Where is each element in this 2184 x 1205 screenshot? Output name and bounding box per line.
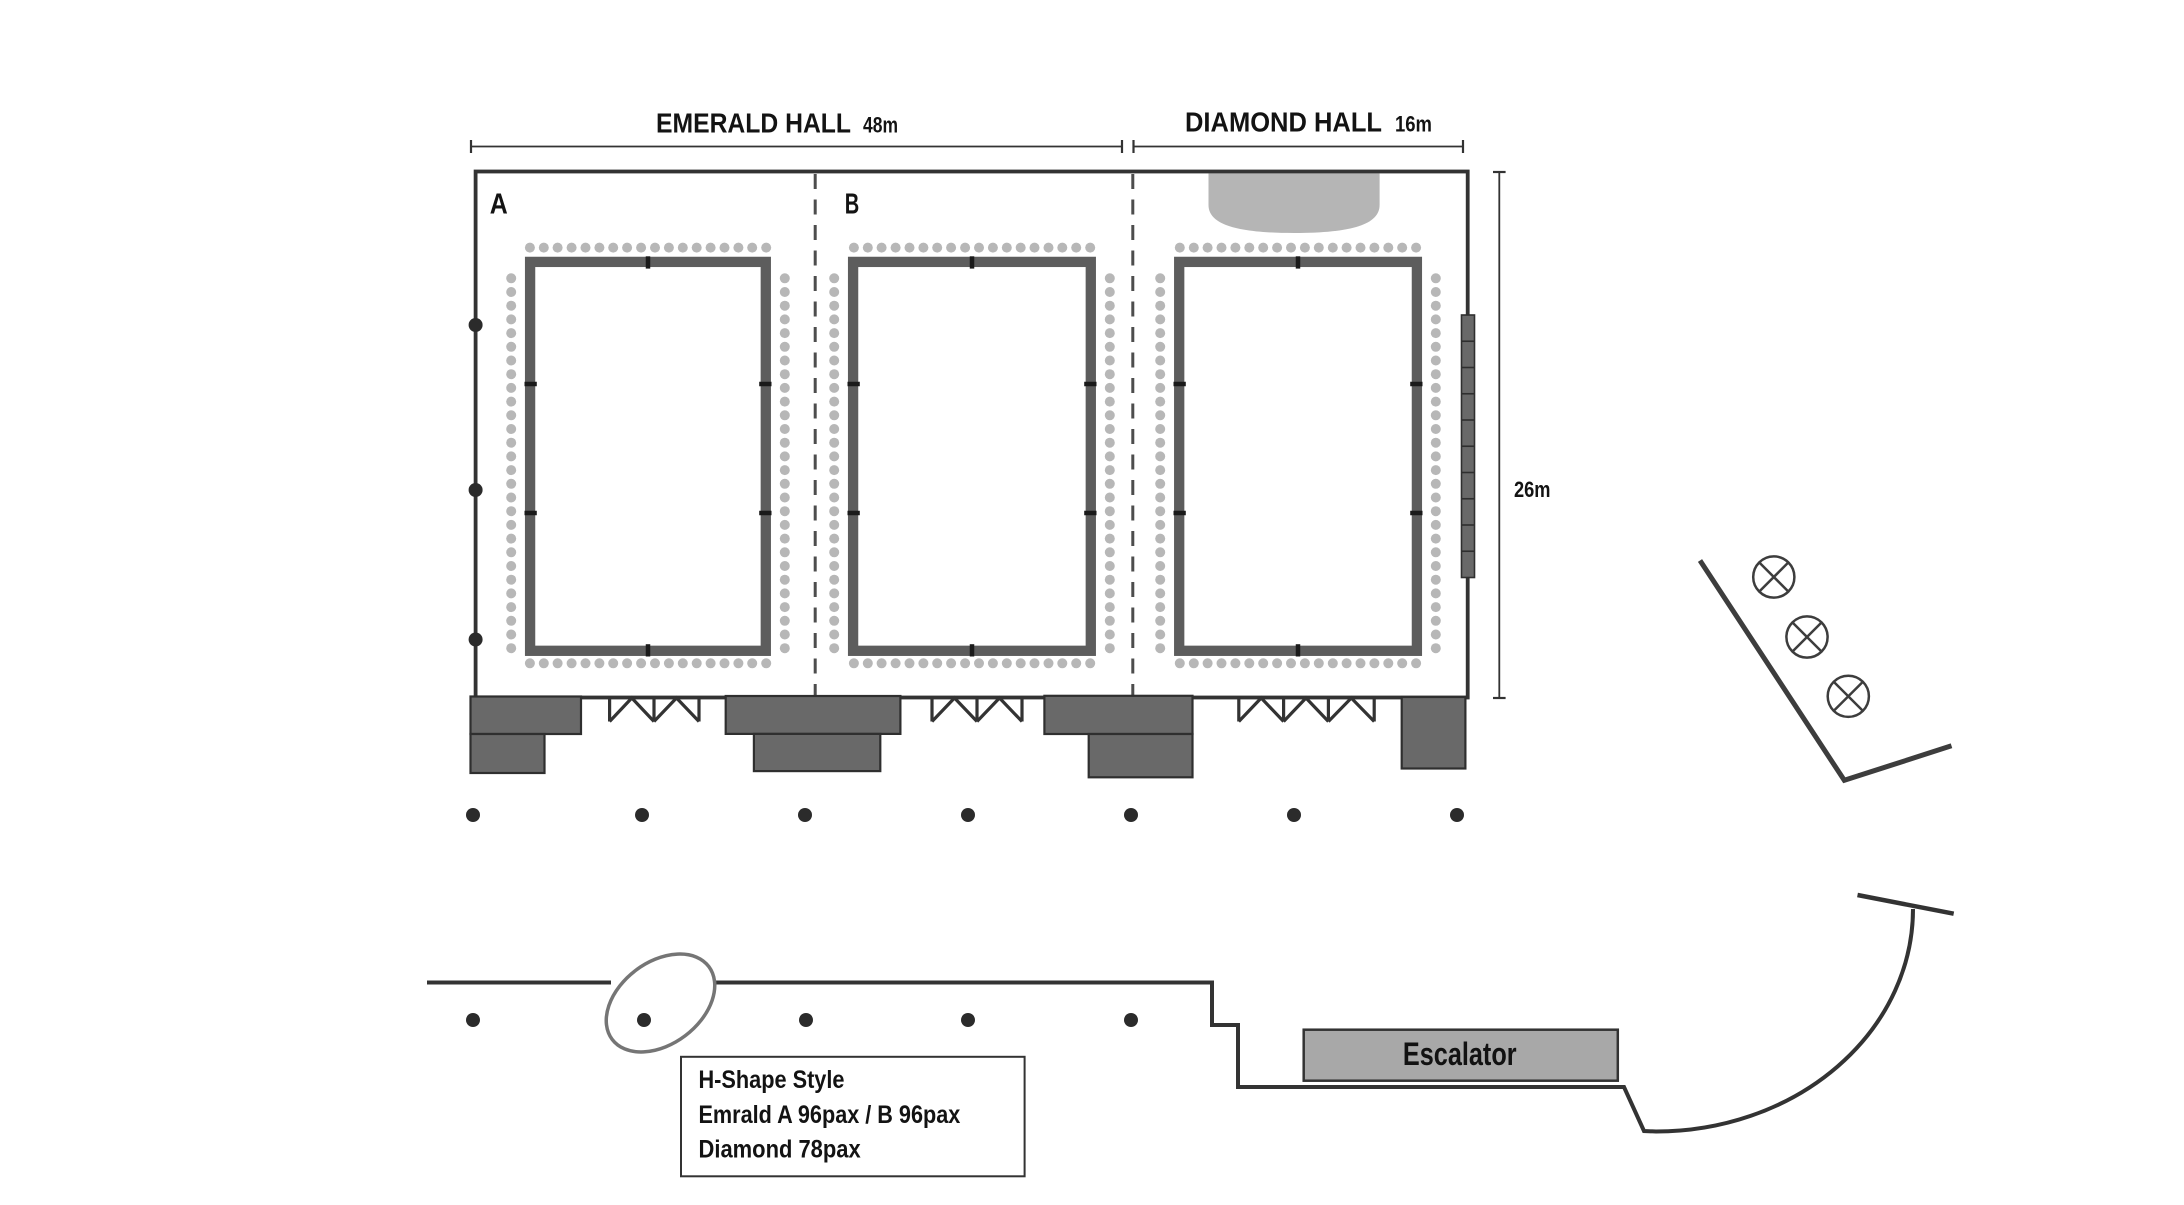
svg-text:Diamond 78pax: Diamond 78pax — [699, 1136, 861, 1164]
svg-text:EMERALD HALL: EMERALD HALL — [656, 108, 851, 139]
svg-text:H-Shape Style: H-Shape Style — [699, 1066, 845, 1094]
svg-text:Escalator: Escalator — [1403, 1036, 1517, 1072]
svg-text:48m: 48m — [863, 113, 898, 138]
svg-text:Emrald A 96pax / B 96pax: Emrald A 96pax / B 96pax — [699, 1101, 961, 1129]
svg-text:B: B — [845, 189, 860, 221]
svg-text:DIAMOND HALL: DIAMOND HALL — [1185, 107, 1382, 138]
svg-text:16m: 16m — [1395, 112, 1432, 137]
svg-text:A: A — [490, 189, 508, 221]
svg-text:26m: 26m — [1514, 477, 1551, 502]
